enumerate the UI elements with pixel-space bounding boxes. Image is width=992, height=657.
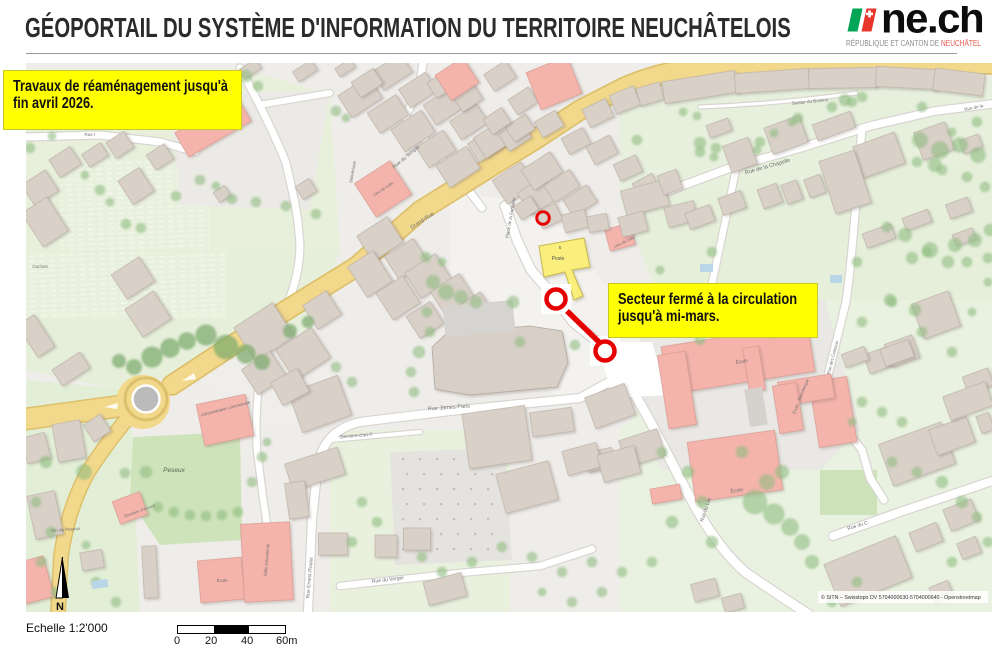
svg-text:Rue r: Rue r [84, 132, 96, 137]
svg-text:RÉPUBLIQUE ET CANTON DE NEUCHÂ: RÉPUBLIQUE ET CANTON DE NEUCHÂTEL [846, 38, 981, 48]
svg-text:Poste: Poste [552, 256, 565, 262]
svg-text:© SITN – Swisstopo DV 57040006: © SITN – Swisstopo DV 5704000630-5704000… [821, 594, 981, 601]
svg-text:Guches: Guches [32, 264, 48, 269]
svg-text:École: École [217, 578, 228, 583]
svg-text:N: N [56, 601, 64, 612]
svg-text:Peseux: Peseux [163, 467, 185, 474]
svg-text:ne.ch: ne.ch [881, 6, 983, 42]
